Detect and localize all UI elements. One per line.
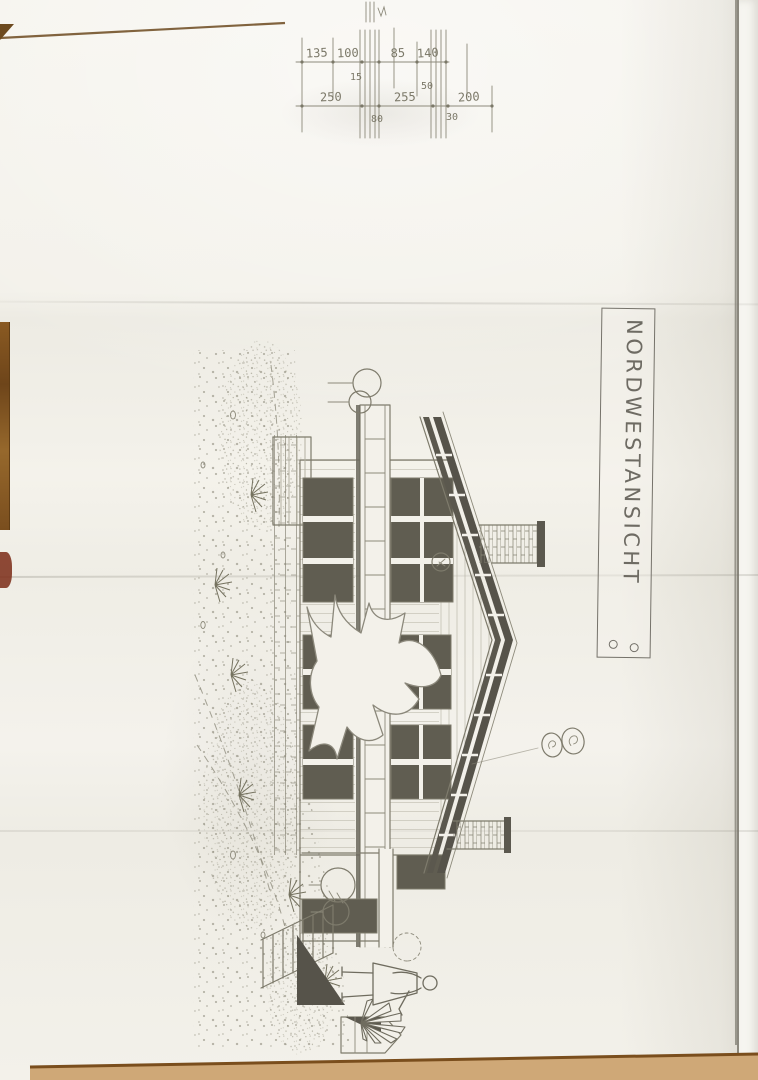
agave-plant bbox=[361, 999, 405, 1043]
paper-top-edge bbox=[0, 23, 285, 38]
figure-coat bbox=[373, 963, 417, 1005]
dimension-chain-upper: 135 100 85 140 15 50 bbox=[296, 45, 449, 92]
drawing-title: NORDWESTANSICHT bbox=[619, 319, 647, 586]
detail-marker-bubbles bbox=[472, 726, 586, 764]
dimension-value: 255 bbox=[394, 90, 416, 105]
chimney-left bbox=[479, 521, 545, 567]
title-block: NORDWESTANSICHT bbox=[597, 308, 656, 659]
dimension-value: 140 bbox=[417, 45, 439, 60]
dimension-chain-lower: 250 255 200 80 30 bbox=[296, 89, 494, 125]
paper-fold-edge-right bbox=[735, 0, 736, 1045]
figure-arm bbox=[399, 991, 409, 1015]
leader-line bbox=[472, 748, 538, 764]
dimension-value: 135 bbox=[306, 45, 328, 60]
dimension-value-small: 15 bbox=[350, 72, 362, 83]
punch-hole bbox=[609, 640, 618, 649]
window-mullions bbox=[303, 759, 353, 765]
detail-marker bbox=[560, 726, 587, 756]
detail-marker bbox=[540, 731, 565, 759]
house-elevation bbox=[261, 405, 545, 1053]
chimney-right bbox=[447, 817, 511, 853]
dimension-value: 85 bbox=[390, 46, 405, 60]
scanned-drawing-sheet: 135 100 85 140 15 50 250 255 200 80 30 bbox=[0, 0, 758, 1080]
figure-legs bbox=[342, 967, 373, 1002]
chimney-cap bbox=[537, 521, 545, 567]
plan-wall-lines bbox=[302, 28, 492, 138]
north-mark bbox=[366, 2, 386, 22]
dimension-value-small: 50 bbox=[421, 81, 433, 92]
dimension-value-small: 30 bbox=[446, 112, 458, 123]
shrub-outline bbox=[393, 933, 421, 961]
dimension-value: 200 bbox=[458, 89, 480, 104]
table-below-paper bbox=[30, 1054, 758, 1080]
dimension-value: 250 bbox=[320, 90, 342, 105]
punch-hole bbox=[630, 643, 639, 652]
chimney-cap bbox=[504, 817, 511, 853]
dimension-value-small: 80 bbox=[371, 114, 383, 125]
dimension-value: 100 bbox=[337, 46, 359, 61]
plan-dimension-area: 135 100 85 140 15 50 250 255 200 80 30 bbox=[296, 2, 494, 138]
elevation-drawing bbox=[193, 340, 545, 1055]
